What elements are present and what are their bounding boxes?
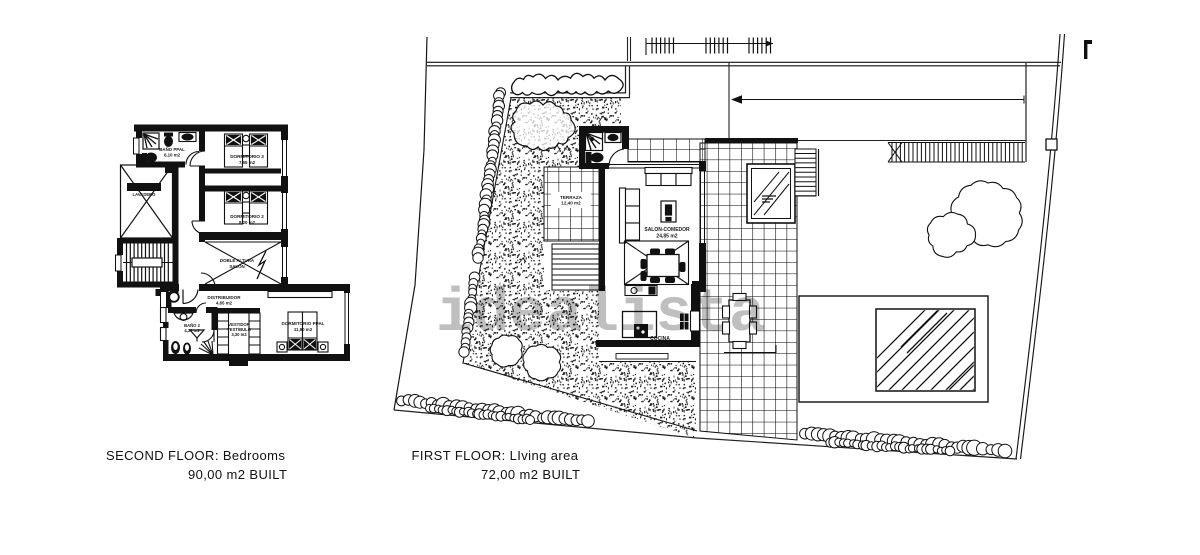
svg-text:7,55 m2: 7,55 m2: [239, 160, 256, 165]
svg-text:4,65 m2: 4,65 m2: [216, 301, 233, 306]
svg-text:DISTRIBUIDOR: DISTRIBUIDOR: [207, 295, 241, 300]
svg-text:DOBLE ALTURA: DOBLE ALTURA: [220, 258, 255, 263]
svg-text:TERRAZA: TERRAZA: [560, 195, 583, 200]
svg-text:11,80 m2: 11,80 m2: [294, 327, 313, 332]
svg-text:DORMITORIO PPAL: DORMITORIO PPAL: [282, 321, 325, 326]
svg-text:12,40 m2: 12,40 m2: [561, 201, 581, 206]
svg-text:4,30 m2: 4,30 m2: [184, 328, 200, 333]
svg-text:SALON: SALON: [229, 264, 244, 269]
svg-text:FIRST FLOOR: LIving area: FIRST FLOOR: LIving area: [412, 448, 579, 463]
svg-text:8,20 m2: 8,20 m2: [239, 220, 256, 225]
svg-text:6,10 m2: 6,10 m2: [164, 153, 181, 158]
svg-text:DORMITORIO 3: DORMITORIO 3: [230, 154, 264, 159]
svg-text:SECOND FLOOR: Bedrooms: SECOND FLOOR: Bedrooms: [106, 448, 285, 463]
svg-text:LAVADERO: LAVADERO: [133, 192, 157, 197]
svg-text:3,30 m2: 3,30 m2: [231, 332, 247, 337]
svg-text:72,00 m2 BUILT: 72,00 m2 BUILT: [481, 467, 580, 482]
svg-text:24,85 m2: 24,85 m2: [656, 234, 677, 240]
svg-text:idealista: idealista: [436, 280, 765, 349]
svg-text:DORMITORIO 2: DORMITORIO 2: [230, 214, 264, 219]
svg-text:BAÑO PPAL: BAÑO PPAL: [159, 147, 185, 152]
svg-text:SALON-COMEDOR: SALON-COMEDOR: [644, 227, 690, 233]
svg-text:90,00 m2 BUILT: 90,00 m2 BUILT: [188, 467, 287, 482]
